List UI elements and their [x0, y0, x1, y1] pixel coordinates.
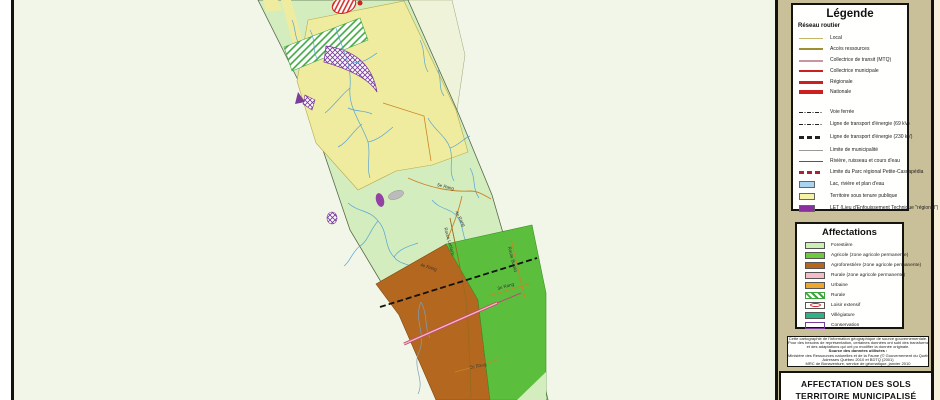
legend-item: Loisir extensif	[797, 302, 902, 311]
legend-item: Collectrice de transit (MTQ)	[793, 56, 907, 65]
line-swatch-energie-69kv	[799, 121, 823, 128]
line-swatch-parc-regional	[799, 169, 823, 176]
swatch-urbaine	[805, 282, 825, 289]
legend-item: Limite du Parc régional Petite-Cascapédi…	[793, 168, 907, 177]
fill-swatch-lac	[799, 181, 823, 188]
line-swatch-collectrice-mtq	[799, 57, 823, 64]
line-swatch-nationale	[799, 89, 823, 96]
legend-item: Régionale	[793, 78, 907, 87]
line-swatch-collectrice-mun	[799, 68, 823, 75]
line-swatch-riviere	[799, 158, 823, 165]
affectations-box: Affectations Forestière Agricole (zone a…	[795, 222, 904, 329]
legend-item: Conservation	[797, 322, 902, 331]
legend-item: Urbaine	[797, 282, 902, 291]
zone-loisir-dot	[358, 1, 363, 6]
map-document: 5e Rang 4e Rang 4e Rang 3e Rang 2e Rang …	[0, 0, 940, 400]
title-block: AFFECTATION DES SOLS TERRITOIRE MUNICIPA…	[779, 371, 933, 400]
legend-item: Lac, rivière et plan d'eau	[793, 180, 907, 189]
legend-item: Ligne de transport d'énergie (69 kV)	[793, 120, 907, 129]
map-subtitle: TERRITOIRE MUNICIPALISÉ	[781, 390, 931, 400]
legend-item: Rivière, ruisseau et cours d'eau	[793, 157, 907, 166]
line-swatch-regionale	[799, 79, 823, 86]
legend-item: Agricole (zone agricole permanente)	[797, 252, 902, 261]
legend-title: Légende	[793, 8, 907, 20]
affectations-title: Affectations	[797, 227, 902, 238]
sheet-margin-right	[934, 0, 940, 400]
line-swatch-local	[799, 35, 823, 42]
map-sheet: 5e Rang 4e Rang 4e Rang 3e Rang 2e Rang …	[14, 0, 775, 400]
swatch-forestiere	[805, 242, 825, 249]
swatch-loisir-extensif	[805, 302, 825, 309]
legend-item: Voie ferrée	[793, 108, 907, 117]
line-swatch-limite-municipalite	[799, 147, 823, 154]
legend-item: Local	[793, 34, 907, 43]
map-title: AFFECTATION DES SOLS	[781, 378, 931, 390]
legend-item: LET (Lieu d'Enfouissement Technique "rég…	[793, 204, 907, 213]
note-line: MRC de Bonaventure, service de géomatiqu…	[788, 362, 928, 366]
legend-item: Villégiature	[797, 312, 902, 321]
legend-item: Nationale	[793, 88, 907, 97]
swatch-villegiature	[805, 312, 825, 319]
legend-item: Collectrice municipale	[793, 67, 907, 76]
source-notes-box: Cette cartographie de l'information géog…	[787, 336, 929, 367]
line-swatch-acces	[799, 46, 823, 53]
swatch-rurale	[805, 292, 825, 299]
road-network-header: Réseau routier	[798, 23, 840, 29]
legend-item: Agroforestière (zone agricole permanente…	[797, 262, 902, 271]
map-graphic: 5e Rang 4e Rang 4e Rang 3e Rang 2e Rang …	[14, 0, 775, 400]
fill-swatch-tenure-publique	[799, 193, 823, 200]
swatch-rurale-zap	[805, 272, 825, 279]
conservation-blob	[327, 212, 337, 224]
swatch-agricole	[805, 252, 825, 259]
legend-item: Rurale (zone agricole permanente)	[797, 272, 902, 281]
legend-item: Rurale	[797, 292, 902, 301]
sheet-border-left	[11, 0, 14, 400]
swatch-conservation	[805, 322, 825, 329]
fill-swatch-let	[799, 205, 823, 212]
swatch-agroforestiere	[805, 262, 825, 269]
line-swatch-energie-230kv	[799, 134, 823, 141]
legend-item: Accès ressources	[793, 45, 907, 54]
legend-item: Territoire sous tenure publique	[793, 192, 907, 201]
legend-item: Forestière	[797, 242, 902, 251]
legend-item: Limite de municipalité	[793, 146, 907, 155]
legend-item: Ligne de transport d'énergie (230 kV)	[793, 133, 907, 142]
line-swatch-voie-ferree	[799, 109, 823, 116]
legend-box: Légende Réseau routier Local Accès resso…	[791, 3, 909, 211]
